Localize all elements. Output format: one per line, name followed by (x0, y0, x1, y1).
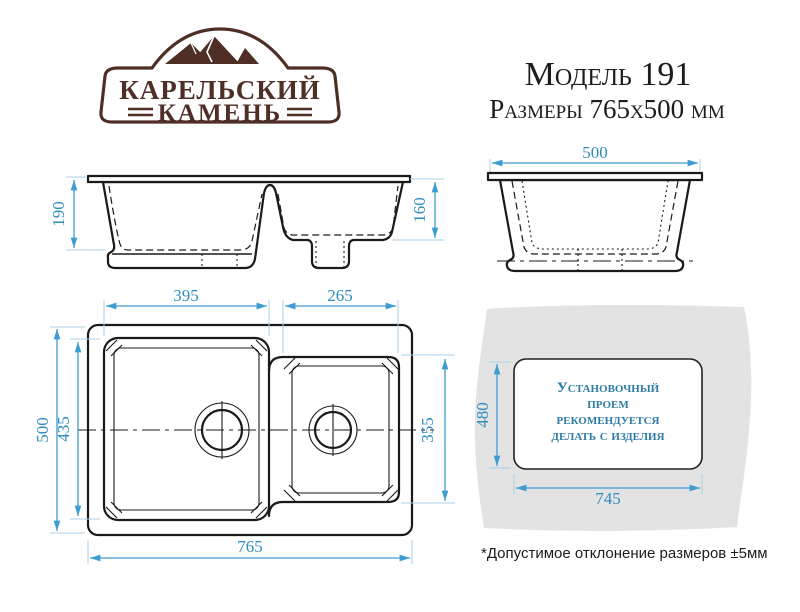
cutout-note-line-1: Установочный (557, 380, 660, 396)
top-dim-395: 395 (173, 286, 199, 305)
cutout-note-line-3: рекомендуется (557, 412, 660, 428)
sink-spec-sheet: КАРЕЛЬСКИЙ КАМЕНЬ Модель 191 Размеры 765… (0, 0, 800, 612)
front-rim (88, 176, 410, 182)
front-view: 190 160 (49, 176, 444, 268)
model-title: Модель 191 (525, 56, 692, 93)
front-dim-190: 190 (49, 201, 68, 227)
cutout-dim-745: 745 (595, 489, 621, 508)
top-dim-500: 500 (33, 417, 52, 443)
header: Модель 191 Размеры 765x500 мм (489, 56, 725, 124)
front-dim-160: 160 (410, 197, 429, 223)
top-dim-765: 765 (237, 537, 263, 556)
tolerance-footnote: *Допустимое отклонение размеров ±5мм (481, 545, 768, 562)
top-dim-265: 265 (327, 286, 353, 305)
top-dim-355: 355 (418, 417, 437, 443)
top-view: 395 265 500 435 355 765 (33, 286, 455, 564)
side-view: 500 (488, 143, 702, 271)
side-dim-500: 500 (582, 143, 608, 162)
front-ext-190 (66, 177, 106, 250)
side-rim (488, 173, 702, 180)
side-body-outline (500, 180, 690, 271)
top-dim-435: 435 (54, 416, 73, 442)
cutout-note-line-4: делать с изделия (551, 428, 664, 444)
front-body-outline (103, 182, 403, 268)
brand-logo: КАРЕЛЬСКИЙ КАМЕНЬ (101, 29, 339, 127)
installation-cutout: Установочный проем рекомендуется делать … (473, 305, 751, 531)
cutout-dim-480: 480 (473, 402, 492, 428)
model-dimensions: Размеры 765x500 мм (489, 94, 725, 124)
brand-name-bottom: КАМЕНЬ (158, 100, 282, 127)
cutout-note-line-2: проем (587, 396, 629, 412)
technical-drawing: КАРЕЛЬСКИЙ КАМЕНЬ Модель 191 Размеры 765… (0, 0, 800, 612)
